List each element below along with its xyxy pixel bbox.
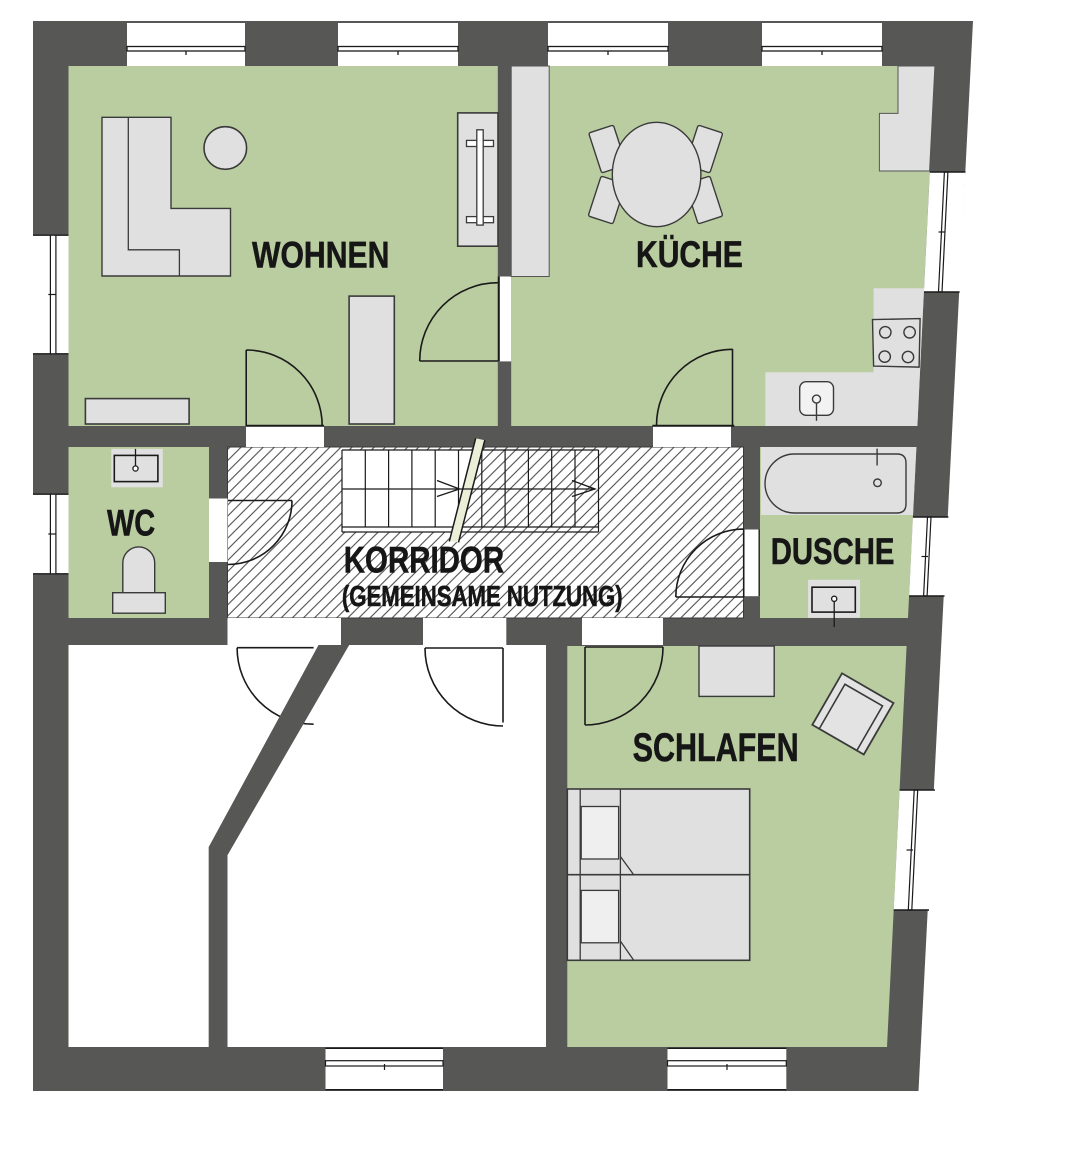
svg-text:DUSCHE: DUSCHE: [771, 531, 895, 572]
svg-text:SCHLAFEN: SCHLAFEN: [633, 726, 799, 770]
svg-text:WC: WC: [107, 503, 155, 544]
svg-text:(GEMEINSAME NUTZUNG): (GEMEINSAME NUTZUNG): [342, 581, 623, 613]
svg-text:WOHNEN: WOHNEN: [252, 234, 389, 275]
svg-text:KORRIDOR: KORRIDOR: [344, 539, 504, 580]
svg-text:KÜCHE: KÜCHE: [636, 234, 743, 275]
